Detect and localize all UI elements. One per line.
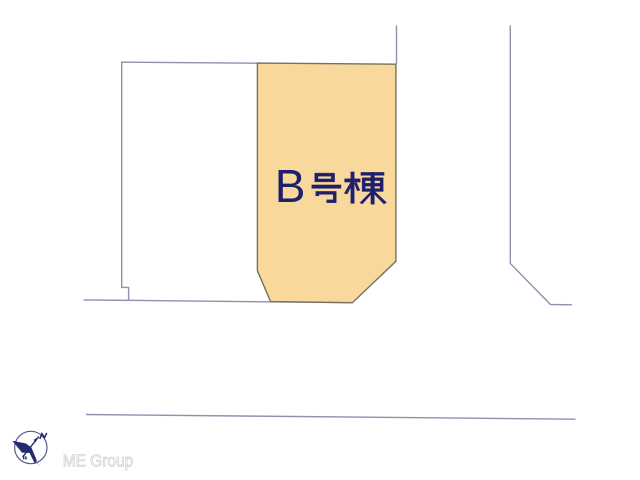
svg-text:ME Group: ME Group <box>63 450 134 470</box>
svg-text:B: B <box>275 160 306 212</box>
